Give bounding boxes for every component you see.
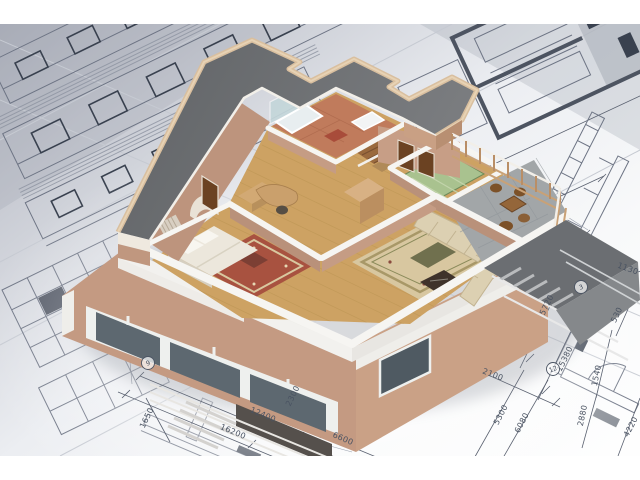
grid-marker: 9 xyxy=(142,357,155,370)
grid-marker: 12 xyxy=(547,363,560,376)
wicker-chair xyxy=(518,214,530,223)
letterbox-top xyxy=(0,0,640,24)
corner-trim xyxy=(62,290,74,336)
letterbox-bottom xyxy=(0,456,640,480)
render-canvas: 1650 16200 12400 2300 6600 2100 5300 608… xyxy=(0,0,640,480)
architectural-render: 1650 16200 12400 2300 6600 2100 5300 608… xyxy=(0,0,640,480)
grid-marker: 3 xyxy=(575,281,588,294)
wicker-chair xyxy=(490,184,502,193)
office-chair xyxy=(276,206,288,215)
